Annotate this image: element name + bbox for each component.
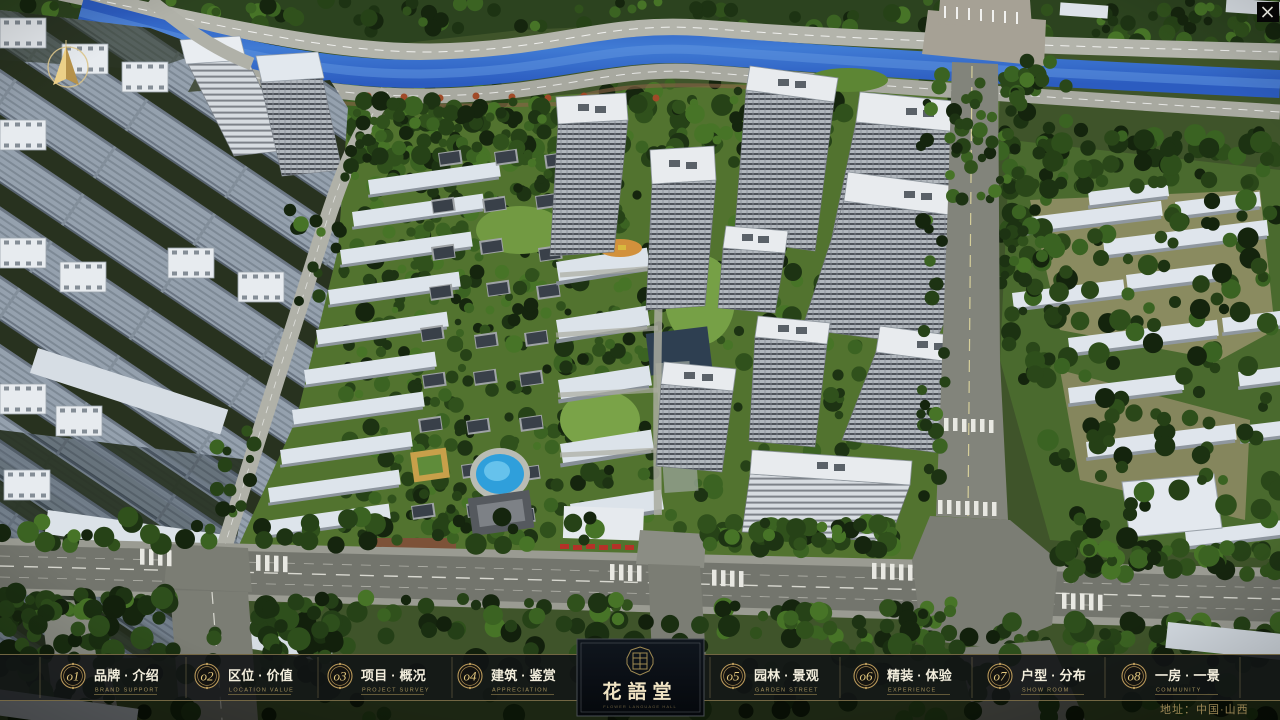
svg-text:o7: o7 xyxy=(994,669,1008,684)
svg-text:o6: o6 xyxy=(860,669,874,684)
svg-text:o1: o1 xyxy=(67,669,80,684)
svg-text:地址：中国·山西: 地址：中国·山西 xyxy=(1160,702,1249,716)
svg-text:FLOWER LANGUAGE HALL: FLOWER LANGUAGE HALL xyxy=(603,704,677,709)
svg-text:一房 · 一景: 一房 · 一景 xyxy=(1155,668,1220,683)
svg-text:PROJECT SURVEY: PROJECT SURVEY xyxy=(362,688,430,694)
svg-text:APPRECIATION: APPRECIATION xyxy=(492,688,548,694)
svg-text:o8: o8 xyxy=(1128,669,1142,684)
svg-text:o4: o4 xyxy=(464,669,478,684)
svg-text:品牌 · 介绍: 品牌 · 介绍 xyxy=(94,668,159,683)
svg-text:户型 · 分布: 户型 · 分布 xyxy=(1021,668,1086,683)
svg-text:园林 · 景观: 园林 · 景观 xyxy=(754,668,819,683)
svg-text:EXPERIENCE: EXPERIENCE xyxy=(888,688,936,694)
svg-text:花語堂: 花語堂 xyxy=(602,680,677,703)
svg-text:区位 · 价值: 区位 · 价值 xyxy=(228,668,293,683)
svg-text:COMMUNITY: COMMUNITY xyxy=(1156,688,1202,694)
svg-text:BRAND SUPPORT: BRAND SUPPORT xyxy=(95,688,159,694)
svg-text:o2: o2 xyxy=(201,669,215,684)
svg-text:项目 · 概况: 项目 · 概况 xyxy=(361,668,426,683)
svg-text:精装 · 体验: 精装 · 体验 xyxy=(887,668,953,683)
svg-text:LOCATION VALUE: LOCATION VALUE xyxy=(229,688,294,694)
svg-text:建筑 · 鉴赏: 建筑 · 鉴赏 xyxy=(491,668,556,683)
svg-text:GARDEN STREET: GARDEN STREET xyxy=(755,688,819,694)
svg-text:o5: o5 xyxy=(727,669,741,684)
svg-text:o3: o3 xyxy=(334,669,348,684)
svg-text:SHOW ROOM: SHOW ROOM xyxy=(1022,688,1069,694)
